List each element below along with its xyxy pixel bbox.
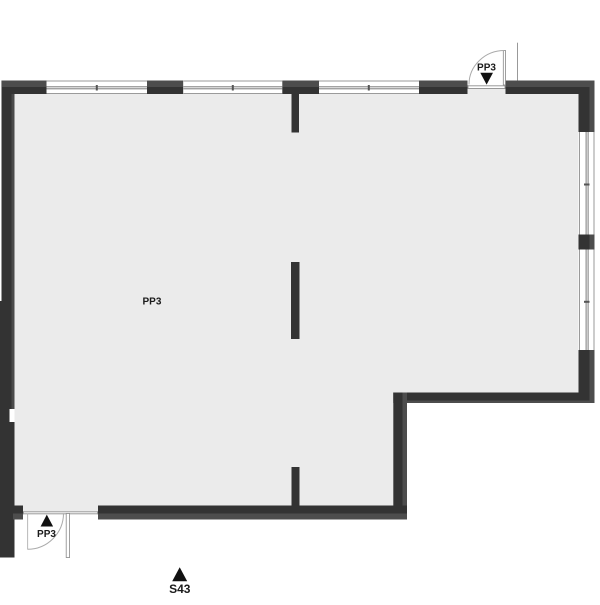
svg-text:PP3: PP3 (143, 297, 162, 308)
svg-text:PP3: PP3 (37, 529, 56, 540)
svg-text:S43: S43 (169, 582, 191, 596)
svg-text:PP3: PP3 (477, 63, 496, 74)
